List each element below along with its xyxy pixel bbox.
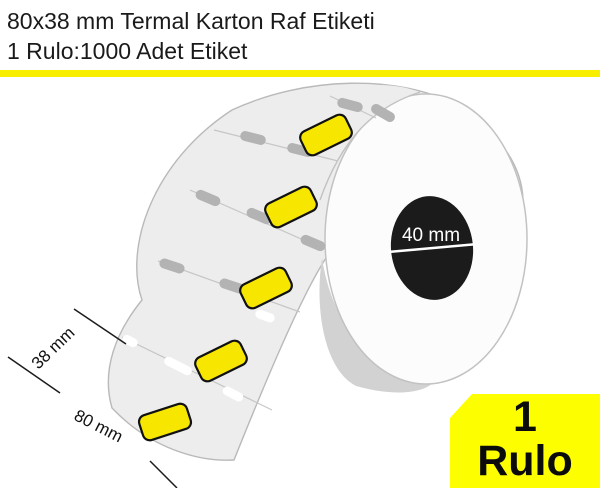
quantity-badge: 1 Rulo xyxy=(450,394,600,488)
dimension-tick xyxy=(150,461,177,488)
strip-width-label: 38 mm xyxy=(28,323,79,373)
core-diameter-label: 40 mm xyxy=(402,225,460,246)
dimension-tick xyxy=(74,309,126,344)
product-image: 80x38 mm Termal Karton Raf Etiketi 1 Rul… xyxy=(0,0,600,488)
badge-unit-label: Rulo xyxy=(450,439,600,483)
badge-count-label: 1 xyxy=(450,396,600,439)
